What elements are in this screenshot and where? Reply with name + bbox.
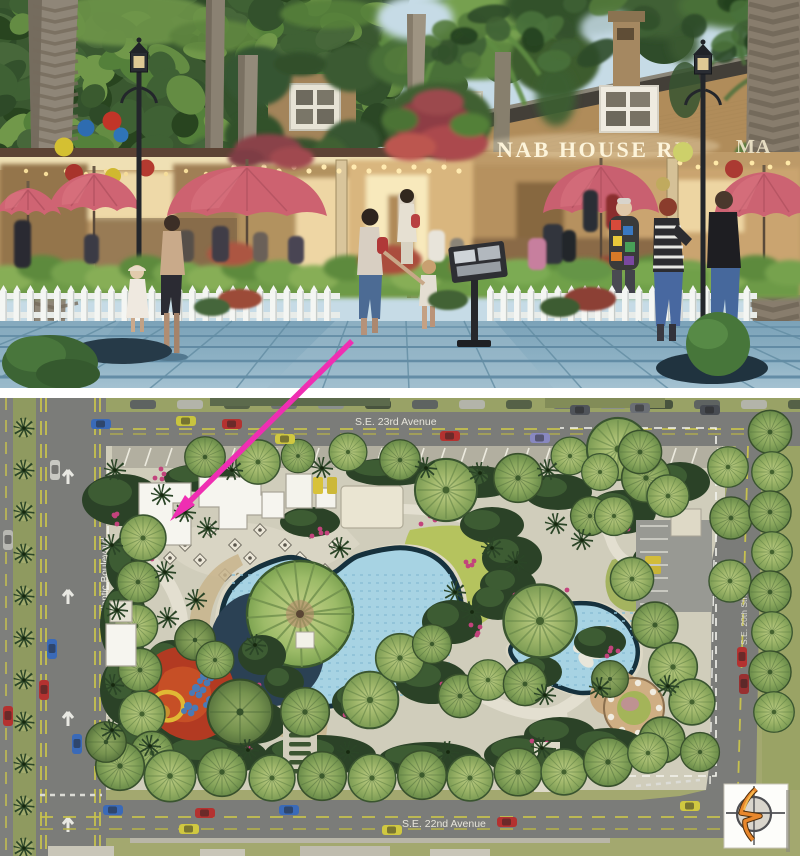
svg-text:S.E. 22nd Avenue: S.E. 22nd Avenue	[402, 818, 486, 830]
svg-text:MA: MA	[736, 136, 771, 158]
svg-text:S.E. 23rd Avenue: S.E. 23rd Avenue	[355, 416, 437, 428]
svg-text:NAB HOUSE RE: NAB HOUSE RE	[497, 137, 692, 162]
